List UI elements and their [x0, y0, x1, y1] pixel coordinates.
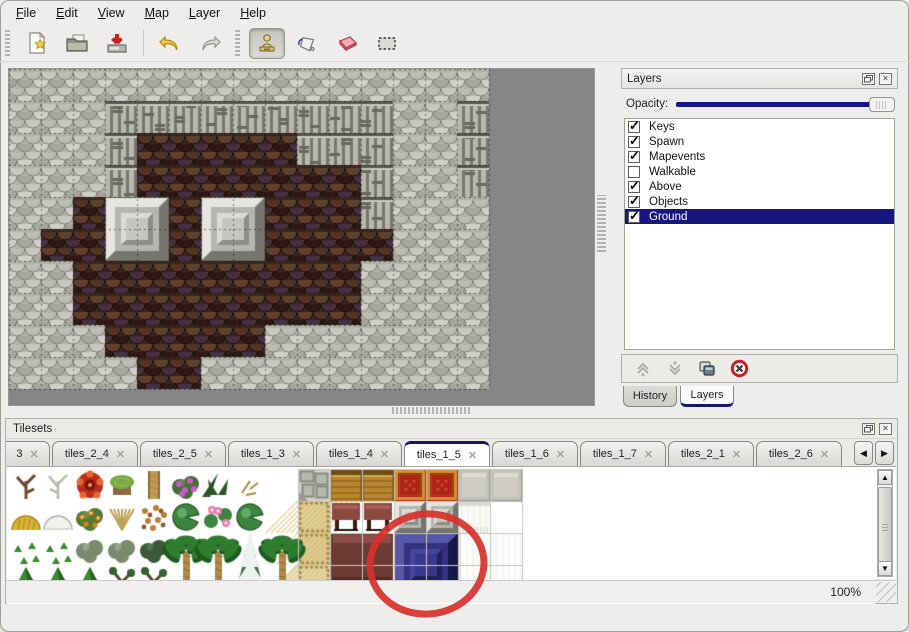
layer-row-above[interactable]: ✓Above	[625, 179, 894, 194]
layer-move-down-button[interactable]	[662, 358, 688, 380]
layer-checkbox[interactable]: ✓	[628, 181, 640, 193]
tileset-scrollbar[interactable]: ▲ ▼	[877, 469, 893, 577]
tab-close-icon[interactable]: ✕	[556, 448, 565, 461]
new-file-button[interactable]	[19, 28, 55, 59]
float-icon	[864, 75, 873, 83]
tileset-tab-tiles_1_3[interactable]: tiles_1_3✕	[228, 441, 314, 466]
scroll-left-icon: ◀	[860, 448, 867, 459]
zoom-level: 100%	[830, 585, 861, 599]
menu-bar: FileEditViewMapLayerHelp	[0, 0, 909, 25]
layer-delete-button[interactable]	[726, 358, 752, 380]
tab-close-icon[interactable]: ✕	[468, 449, 477, 462]
stamp-tool-icon	[255, 31, 279, 55]
undo-button[interactable]	[152, 28, 188, 59]
tab-scroll-buttons: ◀ ▶	[854, 441, 894, 465]
map-canvas[interactable]	[9, 69, 594, 405]
scrollbar-up-button[interactable]: ▲	[878, 470, 892, 485]
tileset-tab-label: tiles_2_4	[65, 448, 109, 460]
delete-icon	[730, 359, 749, 378]
tileset-tab-label: tiles_1_5	[417, 449, 461, 461]
layer-checkbox[interactable]	[628, 166, 640, 178]
redo-button[interactable]	[192, 28, 228, 59]
menu-layer[interactable]: Layer	[179, 2, 230, 24]
tileset-tab-tiles_1_7[interactable]: tiles_1_7✕	[580, 441, 666, 466]
horizontal-splitter-handle[interactable]	[392, 407, 470, 414]
tab-close-icon[interactable]: ✕	[732, 448, 741, 461]
tileset-tab-tiles_2_4[interactable]: tiles_2_4✕	[52, 441, 138, 466]
map-viewport	[8, 68, 595, 406]
layer-name: Keys	[649, 121, 675, 133]
tileset-tab-label: tiles_1_4	[329, 448, 373, 460]
scrollbar-thumb[interactable]	[878, 487, 892, 567]
tileset-tab-tiles_1_6[interactable]: tiles_1_6✕	[492, 441, 578, 466]
layer-checkbox[interactable]: ✓	[628, 151, 640, 163]
layer-row-objects[interactable]: ✓Objects	[625, 194, 894, 209]
tab-scroll-right-button[interactable]: ▶	[875, 441, 894, 465]
tab-close-icon[interactable]: ✕	[820, 448, 829, 461]
layers-panel-title: Layers	[627, 73, 858, 85]
layers-float-button[interactable]	[862, 73, 875, 85]
scrollbar-grip	[882, 524, 888, 531]
opacity-slider[interactable]	[676, 96, 895, 112]
layer-name: Above	[649, 181, 682, 193]
tab-close-icon[interactable]: ✕	[380, 448, 389, 461]
tileset-tab-label: 3	[16, 448, 22, 460]
layer-checkbox[interactable]: ✓	[628, 211, 640, 223]
check-mark: ✓	[629, 133, 640, 149]
scroll-right-icon: ▶	[881, 448, 888, 459]
close-icon: ✕	[882, 75, 889, 83]
undo-icon	[157, 31, 183, 55]
tilesets-panel: Tilesets ✕ 3✕tiles_2_4✕tiles_2_5✕tiles_1…	[5, 418, 898, 604]
layer-name: Spawn	[649, 136, 684, 148]
opacity-row: Opacity:	[621, 93, 898, 115]
tileset-status-bar: 100%	[6, 580, 897, 603]
tileset-tab-3[interactable]: 3✕	[6, 441, 50, 466]
layer-name: Objects	[649, 196, 688, 208]
tileset-tab-tiles_1_4[interactable]: tiles_1_4✕	[316, 441, 402, 466]
tileset-tab-tiles_2_1[interactable]: tiles_2_1✕	[668, 441, 754, 466]
tileset-tab-bar: 3✕tiles_2_4✕tiles_2_5✕tiles_1_3✕tiles_1_…	[6, 440, 853, 466]
tilesets-title: Tilesets	[13, 423, 858, 435]
scrollbar-down-button[interactable]: ▼	[878, 561, 892, 576]
tileset-content: ▲ ▼	[7, 466, 896, 579]
tileset-tab-label: tiles_2_6	[769, 448, 813, 460]
eraser-icon	[334, 31, 360, 55]
save-map-button[interactable]	[99, 28, 135, 59]
layers-close-button[interactable]: ✕	[879, 73, 892, 85]
eraser-tool-button[interactable]	[329, 28, 365, 59]
layers-dock: Layers ✕ Opacity: ✓Keys✓Spawn✓MapeventsW…	[621, 68, 898, 410]
tilesets-float-button[interactable]	[862, 423, 875, 435]
check-mark: ✓	[629, 193, 640, 209]
layer-move-up-button[interactable]	[630, 358, 656, 380]
chevron-down-icon	[666, 360, 684, 378]
layer-row-walkable[interactable]: Walkable	[625, 164, 894, 179]
resize-grip[interactable]	[876, 582, 896, 602]
layer-checkbox[interactable]: ✓	[628, 121, 640, 133]
opacity-slider-handle[interactable]	[869, 97, 895, 112]
chevron-up-icon	[634, 360, 652, 378]
toolbar-separator	[143, 30, 144, 56]
open-folder-icon	[65, 31, 89, 55]
stamp-tool-button[interactable]	[249, 28, 285, 59]
menu-file[interactable]: File	[6, 2, 46, 24]
menu-view[interactable]: View	[88, 2, 135, 24]
duplicate-icon	[698, 360, 716, 378]
dock-tab-bar: HistoryLayers	[623, 386, 734, 407]
opacity-label: Opacity:	[621, 98, 668, 110]
toolbar-grip[interactable]	[5, 30, 10, 56]
toolbar-grip-2[interactable]	[235, 30, 240, 56]
dock-tab-layers[interactable]: Layers	[680, 386, 734, 407]
layer-list: ✓Keys✓Spawn✓MapeventsWalkable✓Above✓Obje…	[624, 118, 895, 350]
check-mark: ✓	[629, 178, 640, 194]
tileset-tab-label: tiles_1_6	[505, 448, 549, 460]
close-icon: ✕	[882, 425, 889, 433]
toolbar	[0, 25, 909, 62]
layer-checkbox[interactable]: ✓	[628, 196, 640, 208]
fill-tool-button[interactable]	[289, 28, 325, 59]
tab-scroll-left-button[interactable]: ◀	[854, 441, 873, 465]
layer-row-spawn[interactable]: ✓Spawn	[625, 134, 894, 149]
tileset-tab-label: tiles_1_3	[241, 448, 285, 460]
check-mark: ✓	[629, 208, 640, 224]
layers-panel-titlebar: Layers ✕	[621, 68, 898, 89]
layer-row-keys[interactable]: ✓Keys	[625, 119, 894, 134]
tileset-tab-label: tiles_2_5	[153, 448, 197, 460]
save-icon	[105, 31, 129, 55]
layer-name: Walkable	[649, 166, 696, 178]
dock-tab-history[interactable]: History	[623, 386, 677, 407]
float-icon	[864, 425, 873, 433]
layer-buttons-row	[621, 354, 898, 383]
tileset-tab-label: tiles_2_1	[681, 448, 725, 460]
opacity-slider-track[interactable]	[676, 102, 885, 107]
layer-row-mapevents[interactable]: ✓Mapevents	[625, 149, 894, 164]
tilesets-close-button[interactable]: ✕	[879, 423, 892, 435]
menu-map[interactable]: Map	[135, 2, 179, 24]
layer-duplicate-button[interactable]	[694, 358, 720, 380]
tab-close-icon[interactable]: ✕	[116, 448, 125, 461]
layer-checkbox[interactable]: ✓	[628, 136, 640, 148]
tab-close-icon[interactable]: ✕	[29, 448, 38, 461]
check-mark: ✓	[629, 148, 640, 164]
redo-icon	[197, 31, 223, 55]
tilesets-titlebar: Tilesets ✕	[6, 419, 897, 439]
tab-close-icon[interactable]: ✕	[644, 448, 653, 461]
menu-help[interactable]: Help	[230, 2, 276, 24]
layer-name: Ground	[649, 211, 687, 223]
check-mark: ✓	[629, 118, 640, 134]
select-tool-button[interactable]	[369, 28, 405, 59]
tab-close-icon[interactable]: ✕	[204, 448, 213, 461]
fill-bucket-icon	[295, 31, 319, 55]
tileset-tab-label: tiles_1_7	[593, 448, 637, 460]
tab-close-icon[interactable]: ✕	[292, 448, 301, 461]
select-rectangle-icon	[375, 31, 399, 55]
layer-name: Mapevents	[649, 151, 705, 163]
tileset-tab-tiles_2_5[interactable]: tiles_2_5✕	[140, 441, 226, 466]
open-map-button[interactable]	[59, 28, 95, 59]
new-file-icon	[25, 31, 49, 55]
vertical-splitter-handle[interactable]	[597, 195, 606, 253]
app-window: FileEditViewMapLayerHelp	[0, 0, 909, 632]
tileset-tab-tiles_1_5[interactable]: tiles_1_5✕	[404, 441, 490, 466]
layer-row-ground[interactable]: ✓Ground	[625, 209, 894, 224]
tileset-tab-tiles_2_6[interactable]: tiles_2_6✕	[756, 441, 842, 466]
menu-edit[interactable]: Edit	[46, 2, 88, 24]
